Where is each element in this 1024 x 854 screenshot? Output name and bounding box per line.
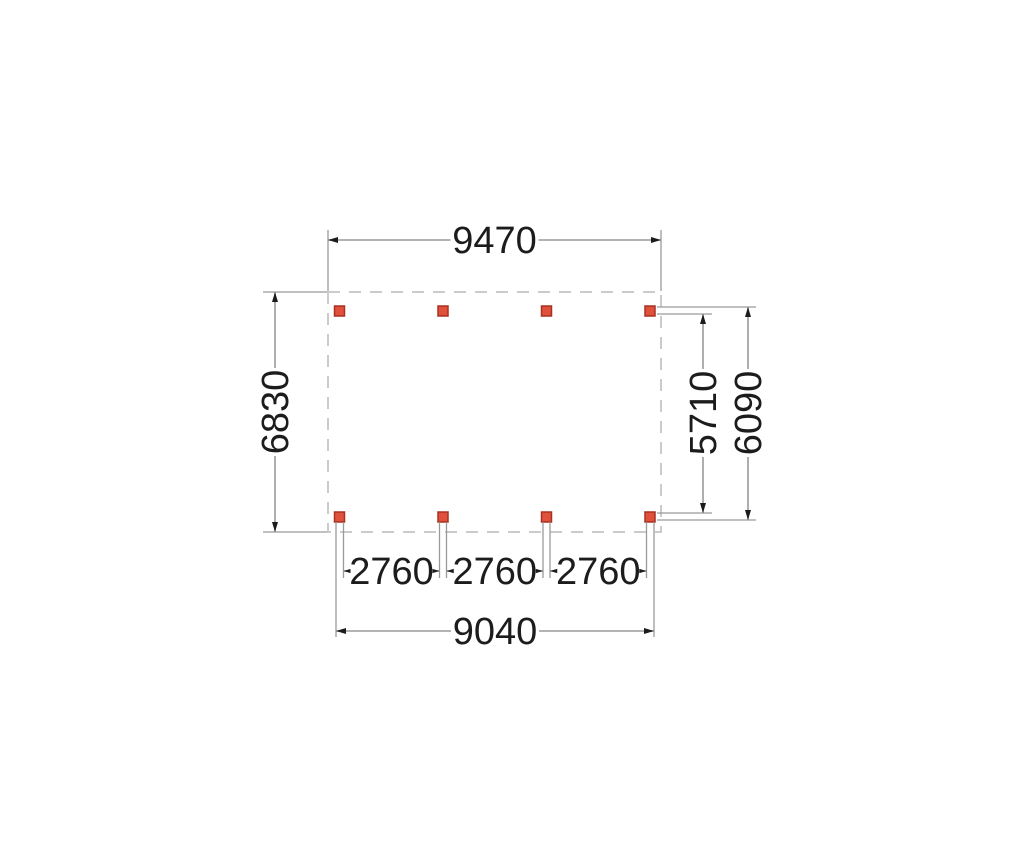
dimension-label-top-width: 9470 — [452, 220, 537, 262]
roof-outline — [328, 292, 661, 532]
post-marker — [645, 512, 655, 522]
post-marker — [645, 306, 655, 316]
post-marker — [542, 512, 552, 522]
dimension-label-left-depth: 6830 — [255, 370, 297, 455]
dimension-label-span-3: 2760 — [556, 551, 641, 593]
floor-plan-page: 9470 6830 5710 6090 2760 2760 2760 9040 — [0, 0, 1024, 854]
post-marker — [438, 512, 448, 522]
dimension-label-span-1: 2760 — [349, 551, 434, 593]
dimension-label-bottom-total: 9040 — [453, 611, 538, 653]
post-marker — [335, 512, 345, 522]
dimension-label-right-outer-depth: 6090 — [728, 371, 770, 456]
post-marker — [438, 306, 448, 316]
dimension-label-right-inner-depth: 5710 — [683, 371, 725, 456]
post-marker — [542, 306, 552, 316]
post-marker — [335, 306, 345, 316]
dimension-label-span-2: 2760 — [452, 551, 537, 593]
floor-plan-drawing: 9470 6830 5710 6090 2760 2760 2760 9040 — [0, 0, 1024, 854]
